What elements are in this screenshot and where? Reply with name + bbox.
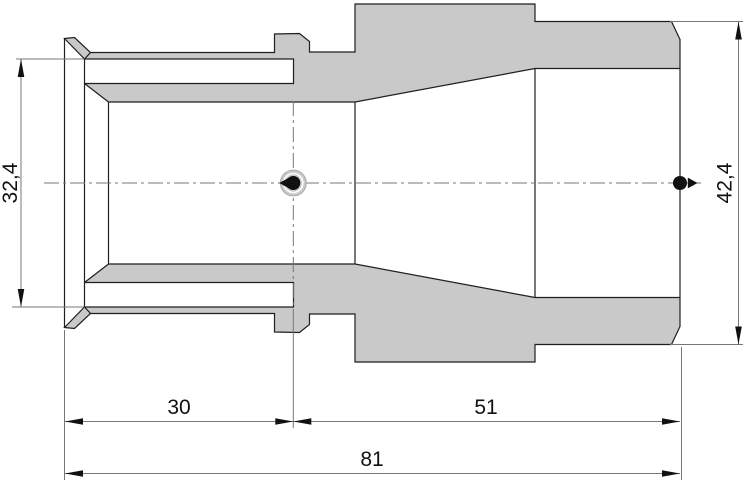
- drawing-page: 32,4 42,4 30 51 81: [0, 0, 750, 485]
- point-dot: [673, 176, 687, 190]
- diameter-right-label: 42,4: [714, 162, 737, 203]
- length-right-label: 51: [474, 396, 497, 419]
- length-total-label: 81: [360, 448, 383, 471]
- diameter-left-label: 32,4: [0, 162, 22, 203]
- technical-drawing-canvas: 32,4 42,4 30 51 81: [0, 0, 750, 485]
- length-left-label: 30: [167, 396, 190, 419]
